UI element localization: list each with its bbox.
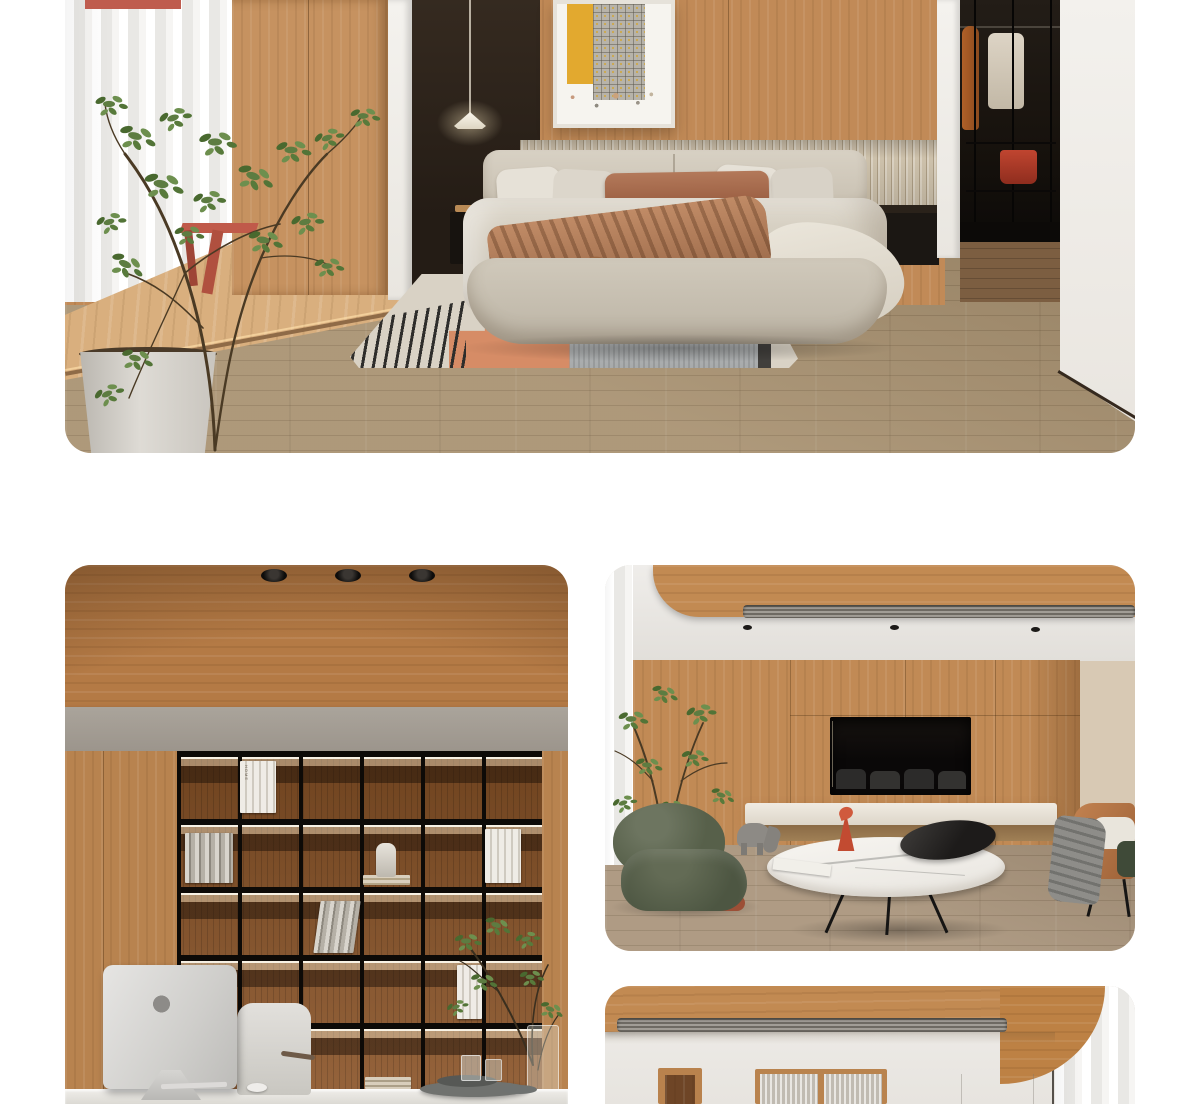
book-spine-label: HOME [244,765,248,781]
desk-book-stack [365,1077,411,1089]
niche-sofa-cushion [870,771,900,789]
hall-ceiling-shadow [605,1032,1055,1044]
hallway-photo [605,986,1135,1104]
glass-cabinet [755,1069,887,1104]
bookshelf-figurine [376,843,396,877]
bed-base [467,258,887,344]
glass-cabinet-door [760,1074,818,1104]
glass-cabinet-door [824,1074,882,1104]
niche-sofa-cushion [904,769,934,789]
ceiling-spotlight [743,625,752,630]
bookshelf-books [485,829,521,883]
ceiling-spotlight [890,625,899,630]
study-glass-vase [527,1025,559,1093]
white-cabinet-seam [1033,1074,1034,1104]
glass-cup [485,1059,502,1081]
hall-doorway-inner [665,1075,695,1104]
study-photo: HOME [65,565,568,1104]
side-plate [503,1085,537,1094]
hall-doorway [658,1068,702,1104]
study-ceiling-vignette [65,565,568,707]
closet-handbag-red [1000,150,1037,184]
artwork-yellow-band [567,4,593,84]
bedroom-artwork [553,0,675,128]
glass-cup [461,1055,481,1081]
closet-rail-3 [1050,0,1052,242]
niche-sofa-cushion [938,771,966,789]
ceiling-spotlight [261,569,287,582]
ceiling-spotlight [409,569,435,582]
elephant-figure-leg [741,843,747,855]
bedroom-plant [65,58,405,453]
elephant-figure-leg [757,843,763,855]
page: HOME [0,0,1200,1104]
bookshelf-books: HOME [240,761,276,813]
bedroom-white-pillar-right [937,0,960,258]
coffee-table-shadow [790,917,1010,943]
bookshelf-books-leaning [313,901,360,953]
media-wall-seam [905,660,906,720]
stone-ledge [745,803,1057,825]
artwork-specks [563,86,659,114]
ceiling-spotlight [335,569,361,582]
hall-air-vent [617,1018,1007,1032]
media-niche [830,717,971,795]
red-shelf-sliver [85,0,181,9]
armchair-cushion-green [1117,841,1135,877]
study-chair [237,1003,311,1095]
closet-jacket-beige [988,33,1024,109]
closet-coat-orange [962,26,979,130]
bedroom-photo [65,0,1135,453]
bedroom-wall-seam [728,0,729,142]
ceiling-spotlight [1031,627,1040,632]
niche-lit-edge [832,721,833,787]
closet-shelf-line [966,142,1056,144]
apple-logo-icon [153,993,170,1013]
closet-base [960,222,1060,242]
bookshelf-books [185,833,233,883]
mouse [247,1083,267,1092]
white-cabinet-seam [961,1074,962,1104]
closet-floor [960,238,1060,302]
air-vent [743,605,1135,618]
gray-throw [1047,815,1108,906]
living-room-photo [605,565,1135,951]
study-gray-beam [65,707,568,751]
niche-sofa-cushion [836,769,866,789]
closet-rail-1 [974,0,976,242]
closet-glass [960,0,1060,242]
closet-rail-2 [1012,0,1014,242]
closet-shelf-line-2 [966,190,1056,192]
pendant-lamp-cord [469,0,471,113]
lounge-chair-seat [621,849,747,911]
bed-shadow [457,334,897,362]
